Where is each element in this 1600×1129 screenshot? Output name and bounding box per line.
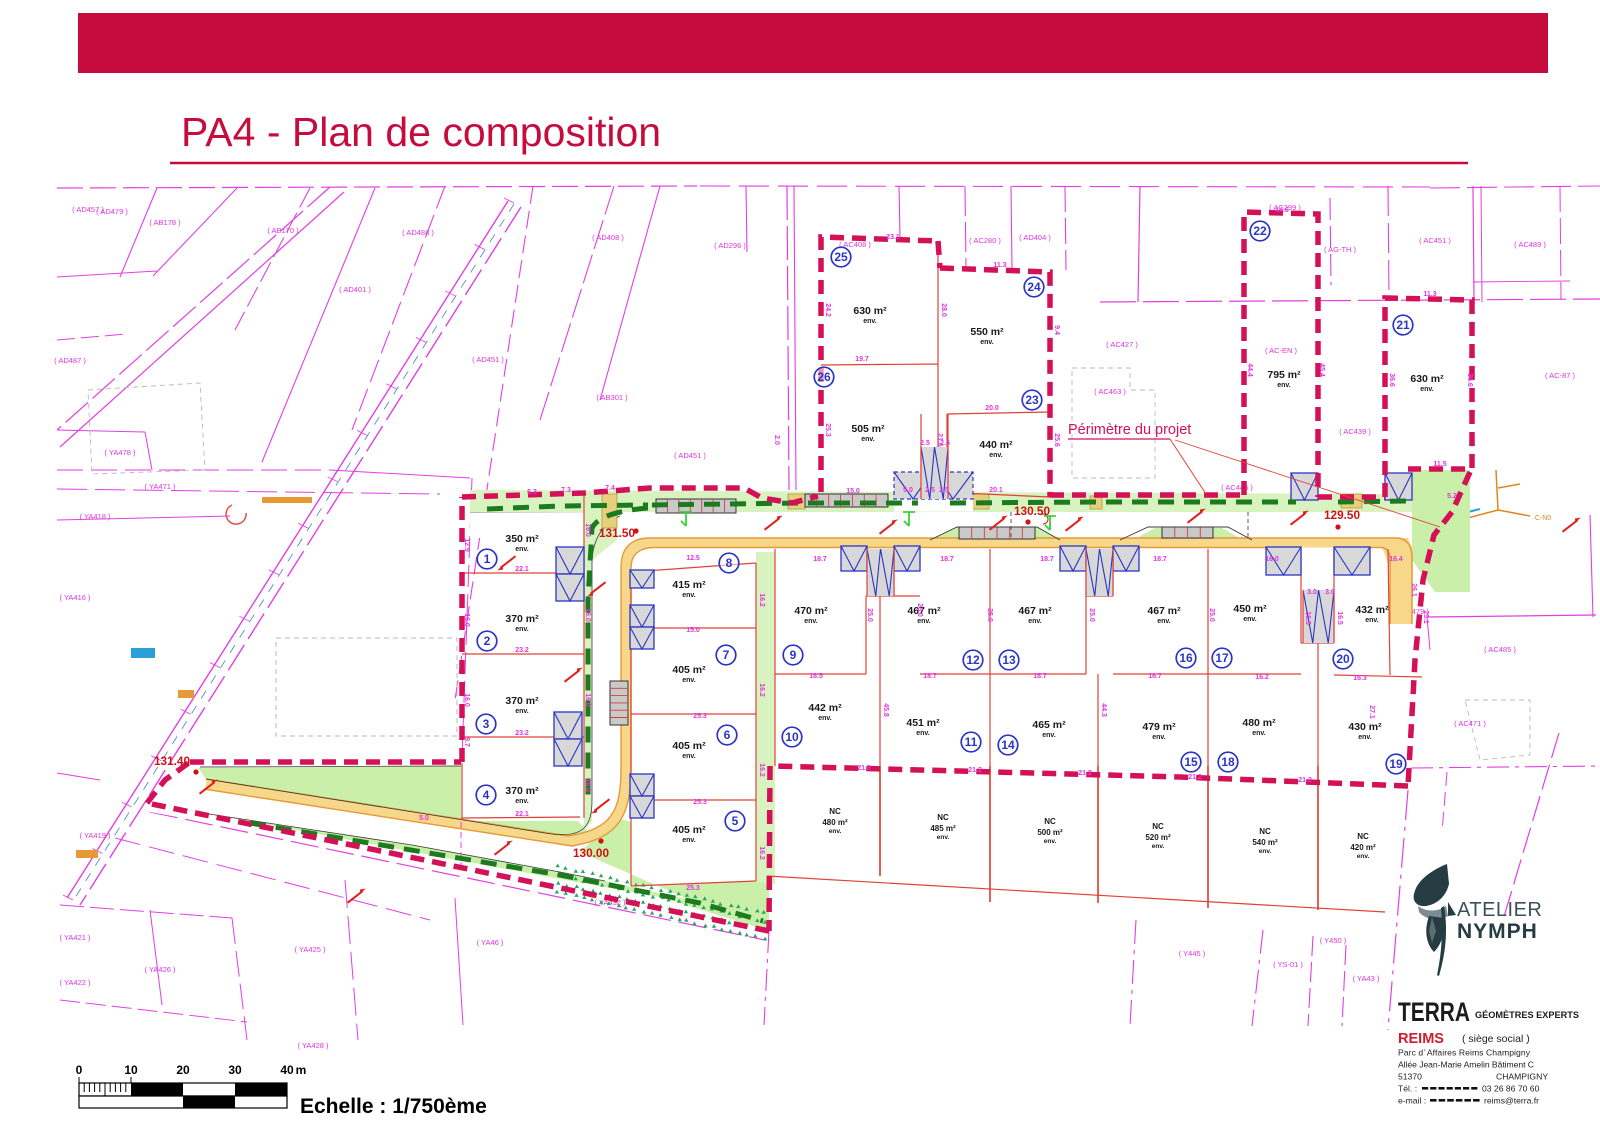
svg-text:( YA478 ): ( YA478 ) — [105, 448, 136, 457]
svg-text:16.2: 16.2 — [758, 683, 765, 697]
svg-text:25.0: 25.0 — [866, 608, 873, 622]
svg-text:25.0: 25.0 — [986, 608, 993, 622]
svg-text:env.: env. — [1028, 618, 1042, 625]
svg-text:env.: env. — [515, 798, 529, 805]
svg-text:131.40: 131.40 — [154, 754, 191, 768]
svg-text:479 m²: 479 m² — [1142, 721, 1176, 733]
svg-text:NC: NC — [1357, 832, 1369, 841]
svg-text:40: 40 — [280, 1063, 294, 1077]
svg-text:16.0: 16.0 — [584, 523, 591, 537]
svg-text:11.5: 11.5 — [1433, 461, 1446, 468]
svg-text:18.7: 18.7 — [940, 556, 954, 563]
svg-text:16.0: 16.0 — [584, 693, 591, 707]
svg-text:env.: env. — [1420, 386, 1434, 393]
svg-text:22.1: 22.1 — [515, 811, 529, 818]
svg-text:env.: env. — [1358, 734, 1372, 741]
svg-text:20.0: 20.0 — [985, 405, 999, 412]
svg-text:( YA428 ): ( YA428 ) — [298, 1041, 329, 1050]
svg-text:( AD488 ): ( AD488 ) — [402, 228, 434, 237]
svg-text:( AC489 ): ( AC489 ) — [1514, 240, 1546, 249]
svg-text:16.7: 16.7 — [1148, 673, 1162, 680]
svg-text:21.2: 21.2 — [968, 767, 982, 774]
svg-text:630 m²: 630 m² — [853, 305, 887, 317]
svg-text:( AD451 ): ( AD451 ) — [472, 355, 504, 364]
svg-text:20: 20 — [176, 1063, 190, 1077]
svg-text:467 m²: 467 m² — [1018, 605, 1052, 617]
svg-text:env.: env. — [515, 546, 529, 553]
svg-text:( AC451 ): ( AC451 ) — [1419, 236, 1451, 245]
svg-text:3: 3 — [483, 717, 490, 731]
svg-text:36.6: 36.6 — [1388, 373, 1395, 387]
svg-text:18: 18 — [1221, 755, 1235, 769]
svg-text:16.0: 16.0 — [463, 693, 470, 707]
svg-text:env.: env. — [1259, 848, 1272, 855]
svg-text:465 m²: 465 m² — [1032, 719, 1066, 731]
svg-text:2.0: 2.0 — [773, 435, 780, 445]
svg-text:env.: env. — [937, 834, 950, 841]
svg-text:16.0: 16.0 — [1265, 556, 1279, 563]
svg-text:03 26 86 70 60: 03 26 86 70 60 — [1482, 1084, 1540, 1094]
svg-text:25.0: 25.0 — [1088, 608, 1095, 622]
svg-text:2.5: 2.5 — [920, 440, 930, 447]
svg-text:( AD451 ): ( AD451 ) — [674, 451, 706, 460]
svg-text:22.1: 22.1 — [515, 566, 529, 573]
svg-text:25.3: 25.3 — [824, 423, 831, 437]
svg-text:( AD487 ): ( AD487 ) — [54, 356, 86, 365]
svg-text:env.: env. — [1277, 382, 1291, 389]
svg-text:17: 17 — [1215, 651, 1229, 665]
svg-text:21.8: 21.8 — [857, 765, 871, 772]
svg-text:( YA418 ): ( YA418 ) — [80, 512, 111, 521]
svg-text:25.0: 25.0 — [1208, 608, 1215, 622]
svg-text:( YA421 ): ( YA421 ) — [60, 933, 91, 942]
svg-text:23.2: 23.2 — [515, 730, 529, 737]
svg-text:12: 12 — [966, 653, 980, 667]
svg-text:19.7: 19.7 — [855, 356, 869, 363]
svg-text:405 m²: 405 m² — [672, 664, 706, 676]
svg-text:21.2: 21.2 — [1298, 777, 1312, 784]
svg-text:e-mail :: e-mail : — [1398, 1096, 1426, 1106]
svg-text:5.0: 5.0 — [419, 815, 429, 822]
svg-text:27.1: 27.1 — [1368, 705, 1375, 719]
svg-text:370 m²: 370 m² — [505, 785, 539, 797]
svg-text:4: 4 — [483, 788, 490, 802]
svg-text:467 m²: 467 m² — [1147, 605, 1181, 617]
svg-text:( AC-87 ): ( AC-87 ) — [1545, 371, 1576, 380]
svg-text:440 m²: 440 m² — [979, 439, 1013, 451]
svg-text:env.: env. — [1042, 732, 1056, 739]
svg-text:( YA419 ): ( YA419 ) — [80, 831, 111, 840]
svg-text:( siège social ): ( siège social ) — [1462, 1033, 1530, 1045]
svg-text:550 m²: 550 m² — [970, 326, 1004, 338]
svg-text:26.1: 26.1 — [1410, 583, 1417, 597]
svg-text:630 m²: 630 m² — [1410, 373, 1444, 385]
svg-text:env.: env. — [804, 618, 818, 625]
svg-text:env.: env. — [916, 730, 930, 737]
svg-text:467 m²: 467 m² — [907, 605, 941, 617]
svg-text:( YA416 ): ( YA416 ) — [60, 593, 91, 602]
svg-text:44.3: 44.3 — [1100, 703, 1107, 717]
svg-text:( AD408 ): ( AD408 ) — [592, 233, 624, 242]
svg-text:( AC446 ): ( AC446 ) — [1221, 483, 1253, 492]
svg-text:16: 16 — [1179, 651, 1193, 665]
svg-text:520 m²: 520 m² — [1145, 833, 1171, 842]
svg-text:reims@terra.fr: reims@terra.fr — [1484, 1096, 1539, 1106]
svg-text:16.2: 16.2 — [1255, 674, 1269, 681]
svg-text:5: 5 — [732, 814, 739, 828]
svg-text:PA4 - Plan de composition: PA4 - Plan de composition — [181, 109, 661, 155]
svg-text:env.: env. — [1243, 616, 1257, 623]
svg-text:9: 9 — [790, 648, 797, 662]
svg-text:15: 15 — [1184, 755, 1198, 769]
svg-text:12.9: 12.9 — [463, 538, 470, 552]
svg-text:25.3: 25.3 — [686, 885, 700, 892]
svg-text:14: 14 — [1001, 738, 1015, 752]
svg-text:24: 24 — [1027, 280, 1041, 294]
svg-text:350 m²: 350 m² — [505, 533, 539, 545]
svg-text:450 m²: 450 m² — [1233, 603, 1267, 615]
svg-text:6: 6 — [724, 728, 731, 742]
svg-text:470 m²: 470 m² — [794, 605, 828, 617]
svg-text:env.: env. — [515, 708, 529, 715]
svg-text:0: 0 — [76, 1063, 83, 1077]
svg-text:( Y450 ): ( Y450 ) — [1320, 936, 1347, 945]
svg-text:env.: env. — [682, 677, 696, 684]
svg-text:15.0: 15.0 — [846, 488, 860, 495]
svg-text:NYMPH: NYMPH — [1457, 920, 1538, 943]
svg-text:( YS-01 ): ( YS-01 ) — [1273, 960, 1303, 969]
svg-text:130.00: 130.00 — [573, 846, 610, 860]
svg-text:405 m²: 405 m² — [672, 740, 706, 752]
svg-text:env.: env. — [1365, 617, 1379, 624]
svg-text:env.: env. — [818, 715, 832, 722]
svg-text:( AD479 ): ( AD479 ) — [96, 207, 128, 216]
svg-text:Parc d’ Affaires Reims Cham: Parc d’ Affaires Reims Champigny — [1398, 1048, 1531, 1058]
svg-text:25.6: 25.6 — [1053, 433, 1060, 447]
svg-text:NC: NC — [1152, 822, 1164, 831]
svg-text:env.: env. — [1152, 843, 1165, 850]
svg-text:env.: env. — [1357, 853, 1370, 860]
svg-text:ATELIER: ATELIER — [1457, 899, 1542, 921]
svg-text:env.: env. — [515, 626, 529, 633]
svg-text:env.: env. — [682, 753, 696, 760]
svg-text:env.: env. — [1157, 618, 1171, 625]
svg-text:env.: env. — [1152, 734, 1166, 741]
svg-text:env.: env. — [917, 618, 931, 625]
svg-text:129.50: 129.50 — [1324, 508, 1361, 522]
svg-text:C-N0: C-N0 — [1535, 515, 1551, 522]
svg-text:28.0: 28.0 — [940, 303, 947, 317]
svg-text:21: 21 — [1396, 318, 1410, 332]
svg-text:18.7: 18.7 — [813, 556, 827, 563]
svg-text:19: 19 — [1389, 757, 1403, 771]
svg-text:12.5: 12.5 — [686, 555, 700, 562]
svg-text:13: 13 — [1002, 653, 1016, 667]
svg-text:16.0: 16.0 — [463, 613, 470, 627]
svg-text:20: 20 — [1336, 652, 1350, 666]
svg-text:( YA46 ): ( YA46 ) — [477, 938, 504, 947]
svg-text:Allée Jean-Marie Amelin Bâ: Allée Jean-Marie Amelin Bâtiment C — [1398, 1060, 1534, 1070]
svg-text:( YA425 ): ( YA425 ) — [295, 945, 326, 954]
svg-text:10: 10 — [785, 730, 799, 744]
svg-text:131.50: 131.50 — [599, 526, 636, 540]
svg-text:540 m²: 540 m² — [1252, 838, 1278, 847]
svg-text:51370: 51370 — [1398, 1072, 1422, 1082]
svg-text:( AD401 ): ( AD401 ) — [339, 285, 371, 294]
svg-text:30: 30 — [228, 1063, 242, 1077]
svg-text:2.5: 2.5 — [939, 487, 949, 494]
svg-text:( YA426 ): ( YA426 ) — [145, 965, 176, 974]
svg-text:env.: env. — [989, 452, 1003, 459]
svg-text:env.: env. — [1252, 730, 1266, 737]
svg-text:NC: NC — [937, 813, 949, 822]
svg-text:44.4: 44.4 — [1246, 363, 1253, 377]
svg-text:NC: NC — [1259, 827, 1271, 836]
svg-text:( AB301 ): ( AB301 ) — [596, 393, 628, 402]
svg-text:Echelle : 1/750ème: Echelle : 1/750ème — [300, 1095, 487, 1118]
svg-text:480 m²: 480 m² — [822, 818, 848, 827]
svg-text:2: 2 — [484, 634, 491, 648]
svg-text:( AC463 ): ( AC463 ) — [1094, 387, 1126, 396]
svg-text:11: 11 — [965, 735, 978, 749]
svg-text:( AC439 ): ( AC439 ) — [1339, 427, 1371, 436]
svg-text:( YA471 ): ( YA471 ) — [145, 482, 176, 491]
svg-text:21.2: 21.2 — [1078, 770, 1092, 777]
svg-text:21.2: 21.2 — [1188, 774, 1202, 781]
svg-text:420 m²: 420 m² — [1350, 843, 1376, 852]
svg-text:m: m — [296, 1063, 307, 1077]
svg-text:NC: NC — [829, 807, 841, 816]
svg-text:1: 1 — [484, 552, 491, 566]
svg-text:Tél. :: Tél. : — [1398, 1084, 1417, 1094]
svg-text:505 m²: 505 m² — [851, 423, 885, 435]
svg-text:442 m²: 442 m² — [808, 702, 842, 714]
svg-text:795 m²: 795 m² — [1267, 369, 1301, 381]
svg-text:( AD296 ): ( AD296 ) — [714, 241, 746, 250]
svg-text:45.8: 45.8 — [882, 703, 889, 717]
svg-text:CHAMPIGNY: CHAMPIGNY — [1496, 1072, 1548, 1082]
svg-text:7: 7 — [723, 648, 730, 662]
svg-text:16.0: 16.0 — [584, 778, 591, 792]
svg-text:21.6: 21.6 — [936, 433, 943, 447]
svg-text:7.4: 7.4 — [605, 485, 615, 492]
svg-text:env.: env. — [861, 436, 875, 443]
svg-text:9.7: 9.7 — [463, 737, 470, 747]
svg-text:env.: env. — [863, 318, 877, 325]
svg-text:24.2: 24.2 — [824, 303, 831, 317]
svg-text:( YA422 ): ( YA422 ) — [60, 978, 91, 987]
svg-text:415 m²: 415 m² — [672, 579, 706, 591]
svg-text:env.: env. — [682, 837, 696, 844]
svg-text:15.0: 15.0 — [686, 627, 700, 634]
svg-text:18.7: 18.7 — [1040, 556, 1054, 563]
svg-text:16.0: 16.0 — [584, 608, 591, 622]
svg-text:10: 10 — [124, 1063, 138, 1077]
svg-text:370 m²: 370 m² — [505, 613, 539, 625]
svg-text:( AC-EN ): ( AC-EN ) — [1265, 346, 1298, 355]
svg-text:( AB170 ): ( AB170 ) — [267, 226, 299, 235]
svg-text:22: 22 — [1253, 224, 1267, 238]
svg-text:18.7: 18.7 — [1033, 673, 1047, 680]
svg-text:36.6: 36.6 — [1466, 373, 1473, 387]
svg-text:16.5: 16.5 — [1304, 611, 1311, 625]
svg-text:25.3: 25.3 — [693, 713, 707, 720]
svg-text:env.: env. — [1044, 838, 1057, 845]
svg-text:18.7: 18.7 — [923, 673, 937, 680]
svg-text:430 m²: 430 m² — [1348, 721, 1382, 733]
svg-text:( AC280 ): ( AC280 ) — [969, 236, 1001, 245]
svg-text:480 m²: 480 m² — [1242, 717, 1276, 729]
svg-text:( YA43 ): ( YA43 ) — [1353, 974, 1380, 983]
svg-text:45.4: 45.4 — [1318, 363, 1325, 377]
svg-text:26: 26 — [817, 370, 831, 384]
svg-text:8: 8 — [726, 556, 733, 570]
svg-text:7.3: 7.3 — [561, 487, 571, 494]
svg-text:env.: env. — [829, 828, 842, 835]
svg-text:485 m²: 485 m² — [930, 824, 956, 833]
svg-text:3.0: 3.0 — [1325, 589, 1335, 596]
svg-text:370 m²: 370 m² — [505, 695, 539, 707]
svg-text:( AC427 ): ( AC427 ) — [1106, 340, 1138, 349]
svg-text:2.5: 2.5 — [925, 487, 935, 494]
svg-text:( AC485 ): ( AC485 ) — [1484, 645, 1516, 654]
svg-text:11.3: 11.3 — [1423, 291, 1436, 298]
svg-text:TERRA: TERRA — [1398, 997, 1470, 1027]
svg-text:25.3: 25.3 — [693, 799, 707, 806]
svg-text:23.2: 23.2 — [515, 647, 529, 654]
svg-text:25: 25 — [834, 250, 848, 264]
svg-text:18.7: 18.7 — [1153, 556, 1167, 563]
svg-text:405 m²: 405 m² — [672, 824, 706, 836]
svg-text:( AC471 ): ( AC471 ) — [1454, 719, 1486, 728]
svg-text:18.5: 18.5 — [809, 673, 823, 680]
svg-text:( Y445 ): ( Y445 ) — [1179, 949, 1206, 958]
svg-text:23.1: 23.1 — [886, 234, 900, 241]
svg-text:16.2: 16.2 — [758, 763, 765, 777]
svg-text:( AD404 ): ( AD404 ) — [1019, 233, 1051, 242]
svg-text:16.4: 16.4 — [1389, 556, 1403, 563]
svg-text:5.0: 5.0 — [903, 487, 913, 494]
svg-text:16.3: 16.3 — [1353, 675, 1367, 682]
svg-text:( AG-TH ): ( AG-TH ) — [1324, 245, 1357, 254]
svg-text:GÉOMÈTRES EXPERTS: GÉOMÈTRES EXPERTS — [1475, 1010, 1579, 1021]
svg-text:6.3: 6.3 — [527, 489, 537, 496]
svg-text:5.2: 5.2 — [1447, 493, 1457, 500]
svg-text:432 m²: 432 m² — [1355, 604, 1389, 616]
svg-text:9.4: 9.4 — [1053, 325, 1060, 335]
svg-text:16.2: 16.2 — [758, 846, 765, 860]
svg-text:3.0: 3.0 — [1307, 589, 1317, 596]
svg-text:env.: env. — [682, 592, 696, 599]
svg-text:( AB178 ): ( AB178 ) — [149, 218, 181, 227]
svg-text:25.1: 25.1 — [1422, 610, 1429, 624]
svg-text:16.2: 16.2 — [758, 593, 765, 607]
svg-text:20.1: 20.1 — [989, 487, 1003, 494]
svg-text:23: 23 — [1025, 393, 1039, 407]
svg-text:16.5: 16.5 — [1336, 611, 1343, 625]
svg-text:Périmètre du projet: Périmètre du projet — [1068, 422, 1191, 438]
svg-text:REIMS: REIMS — [1398, 1030, 1444, 1047]
svg-text:env.: env. — [980, 339, 994, 346]
svg-text:500 m²: 500 m² — [1037, 828, 1063, 837]
svg-text:NC: NC — [1044, 817, 1056, 826]
svg-text:11.3: 11.3 — [993, 262, 1006, 269]
svg-text:25.0: 25.0 — [916, 603, 923, 617]
svg-text:14.6: 14.6 — [1275, 207, 1289, 214]
svg-text:451 m²: 451 m² — [906, 717, 940, 729]
